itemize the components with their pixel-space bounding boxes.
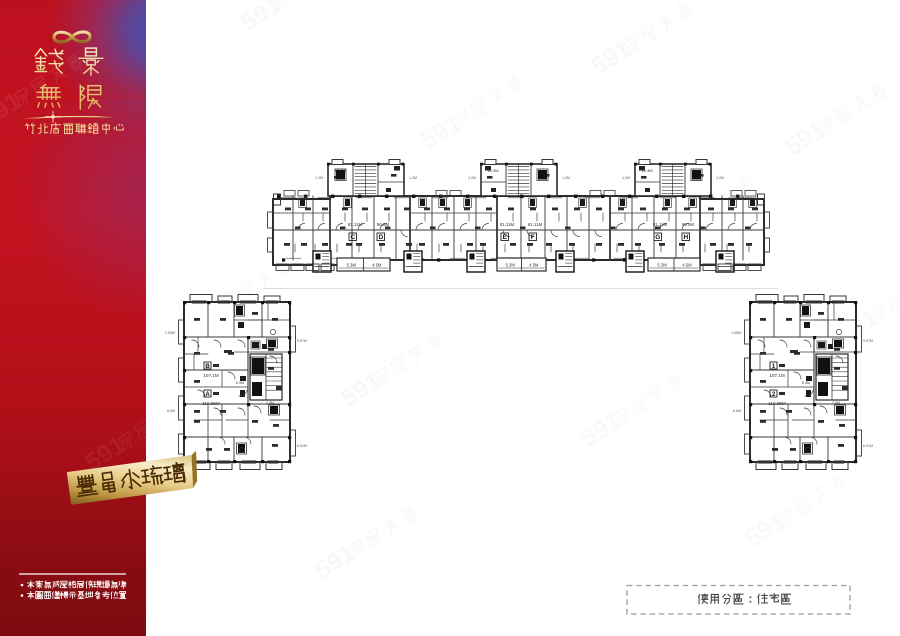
svg-text:5.3M: 5.3M bbox=[657, 263, 667, 268]
svg-text:A: A bbox=[205, 392, 210, 398]
svg-text:1.2M: 1.2M bbox=[716, 176, 724, 180]
svg-text:2.0M: 2.0M bbox=[266, 401, 274, 405]
svg-text:591: 591 bbox=[416, 109, 466, 155]
svg-text:6.91M: 6.91M bbox=[863, 444, 873, 448]
svg-text:8.6M: 8.6M bbox=[167, 409, 175, 413]
svg-text:1.2M: 1.2M bbox=[622, 176, 630, 180]
svg-text:B: B bbox=[205, 364, 210, 370]
svg-text:591: 591 bbox=[576, 407, 626, 453]
svg-text:81.11M: 81.11M bbox=[653, 222, 668, 227]
svg-text:5.3M: 5.3M bbox=[236, 381, 244, 385]
svg-text:5.3M: 5.3M bbox=[802, 381, 810, 385]
svg-text:1.2M: 1.2M bbox=[562, 176, 570, 180]
svg-text:0.97M: 0.97M bbox=[297, 339, 307, 343]
svg-text:110.95M: 110.95M bbox=[202, 401, 220, 406]
svg-text:4.5M: 4.5M bbox=[682, 263, 692, 268]
svg-text:4.5M: 4.5M bbox=[372, 263, 382, 268]
svg-text:2.0M: 2.0M bbox=[832, 401, 840, 405]
svg-text:G: G bbox=[655, 234, 660, 241]
svg-text:5.3M: 5.3M bbox=[347, 263, 357, 268]
svg-text:E: E bbox=[503, 234, 508, 241]
svg-text:591: 591 bbox=[310, 539, 360, 585]
svg-text:1.2M: 1.2M bbox=[409, 176, 417, 180]
svg-text:81.11M: 81.11M bbox=[500, 222, 515, 227]
svg-text:8.6M: 8.6M bbox=[733, 409, 741, 413]
svg-text:4.5M: 4.5M bbox=[529, 263, 539, 268]
svg-text:81.11M: 81.11M bbox=[348, 222, 363, 227]
svg-text:107.1M: 107.1M bbox=[203, 373, 218, 378]
svg-text:1.2M: 1.2M bbox=[468, 176, 476, 180]
svg-text:591: 591 bbox=[740, 507, 790, 553]
svg-text:0.97M: 0.97M bbox=[863, 339, 873, 343]
svg-text:96.5M: 96.5M bbox=[377, 222, 390, 227]
svg-text:591: 591 bbox=[336, 367, 386, 413]
svg-text:6.91M: 6.91M bbox=[297, 444, 307, 448]
svg-text:591: 591 bbox=[586, 35, 636, 81]
svg-text:96.5M: 96.5M bbox=[682, 222, 695, 227]
svg-text:5.3M: 5.3M bbox=[506, 263, 516, 268]
svg-text:D: D bbox=[378, 234, 383, 241]
svg-text:1.05M: 1.05M bbox=[165, 331, 175, 335]
svg-text:H: H bbox=[683, 234, 688, 241]
svg-text:1.05M: 1.05M bbox=[731, 331, 741, 335]
svg-text:110.95M: 110.95M bbox=[768, 401, 786, 406]
svg-text:81.11M: 81.11M bbox=[528, 222, 543, 227]
svg-text:1.2M: 1.2M bbox=[315, 176, 323, 180]
svg-text:107.1M: 107.1M bbox=[769, 373, 784, 378]
svg-text:C: C bbox=[350, 234, 355, 241]
svg-text:F: F bbox=[531, 234, 535, 241]
svg-text:591: 591 bbox=[780, 116, 830, 162]
